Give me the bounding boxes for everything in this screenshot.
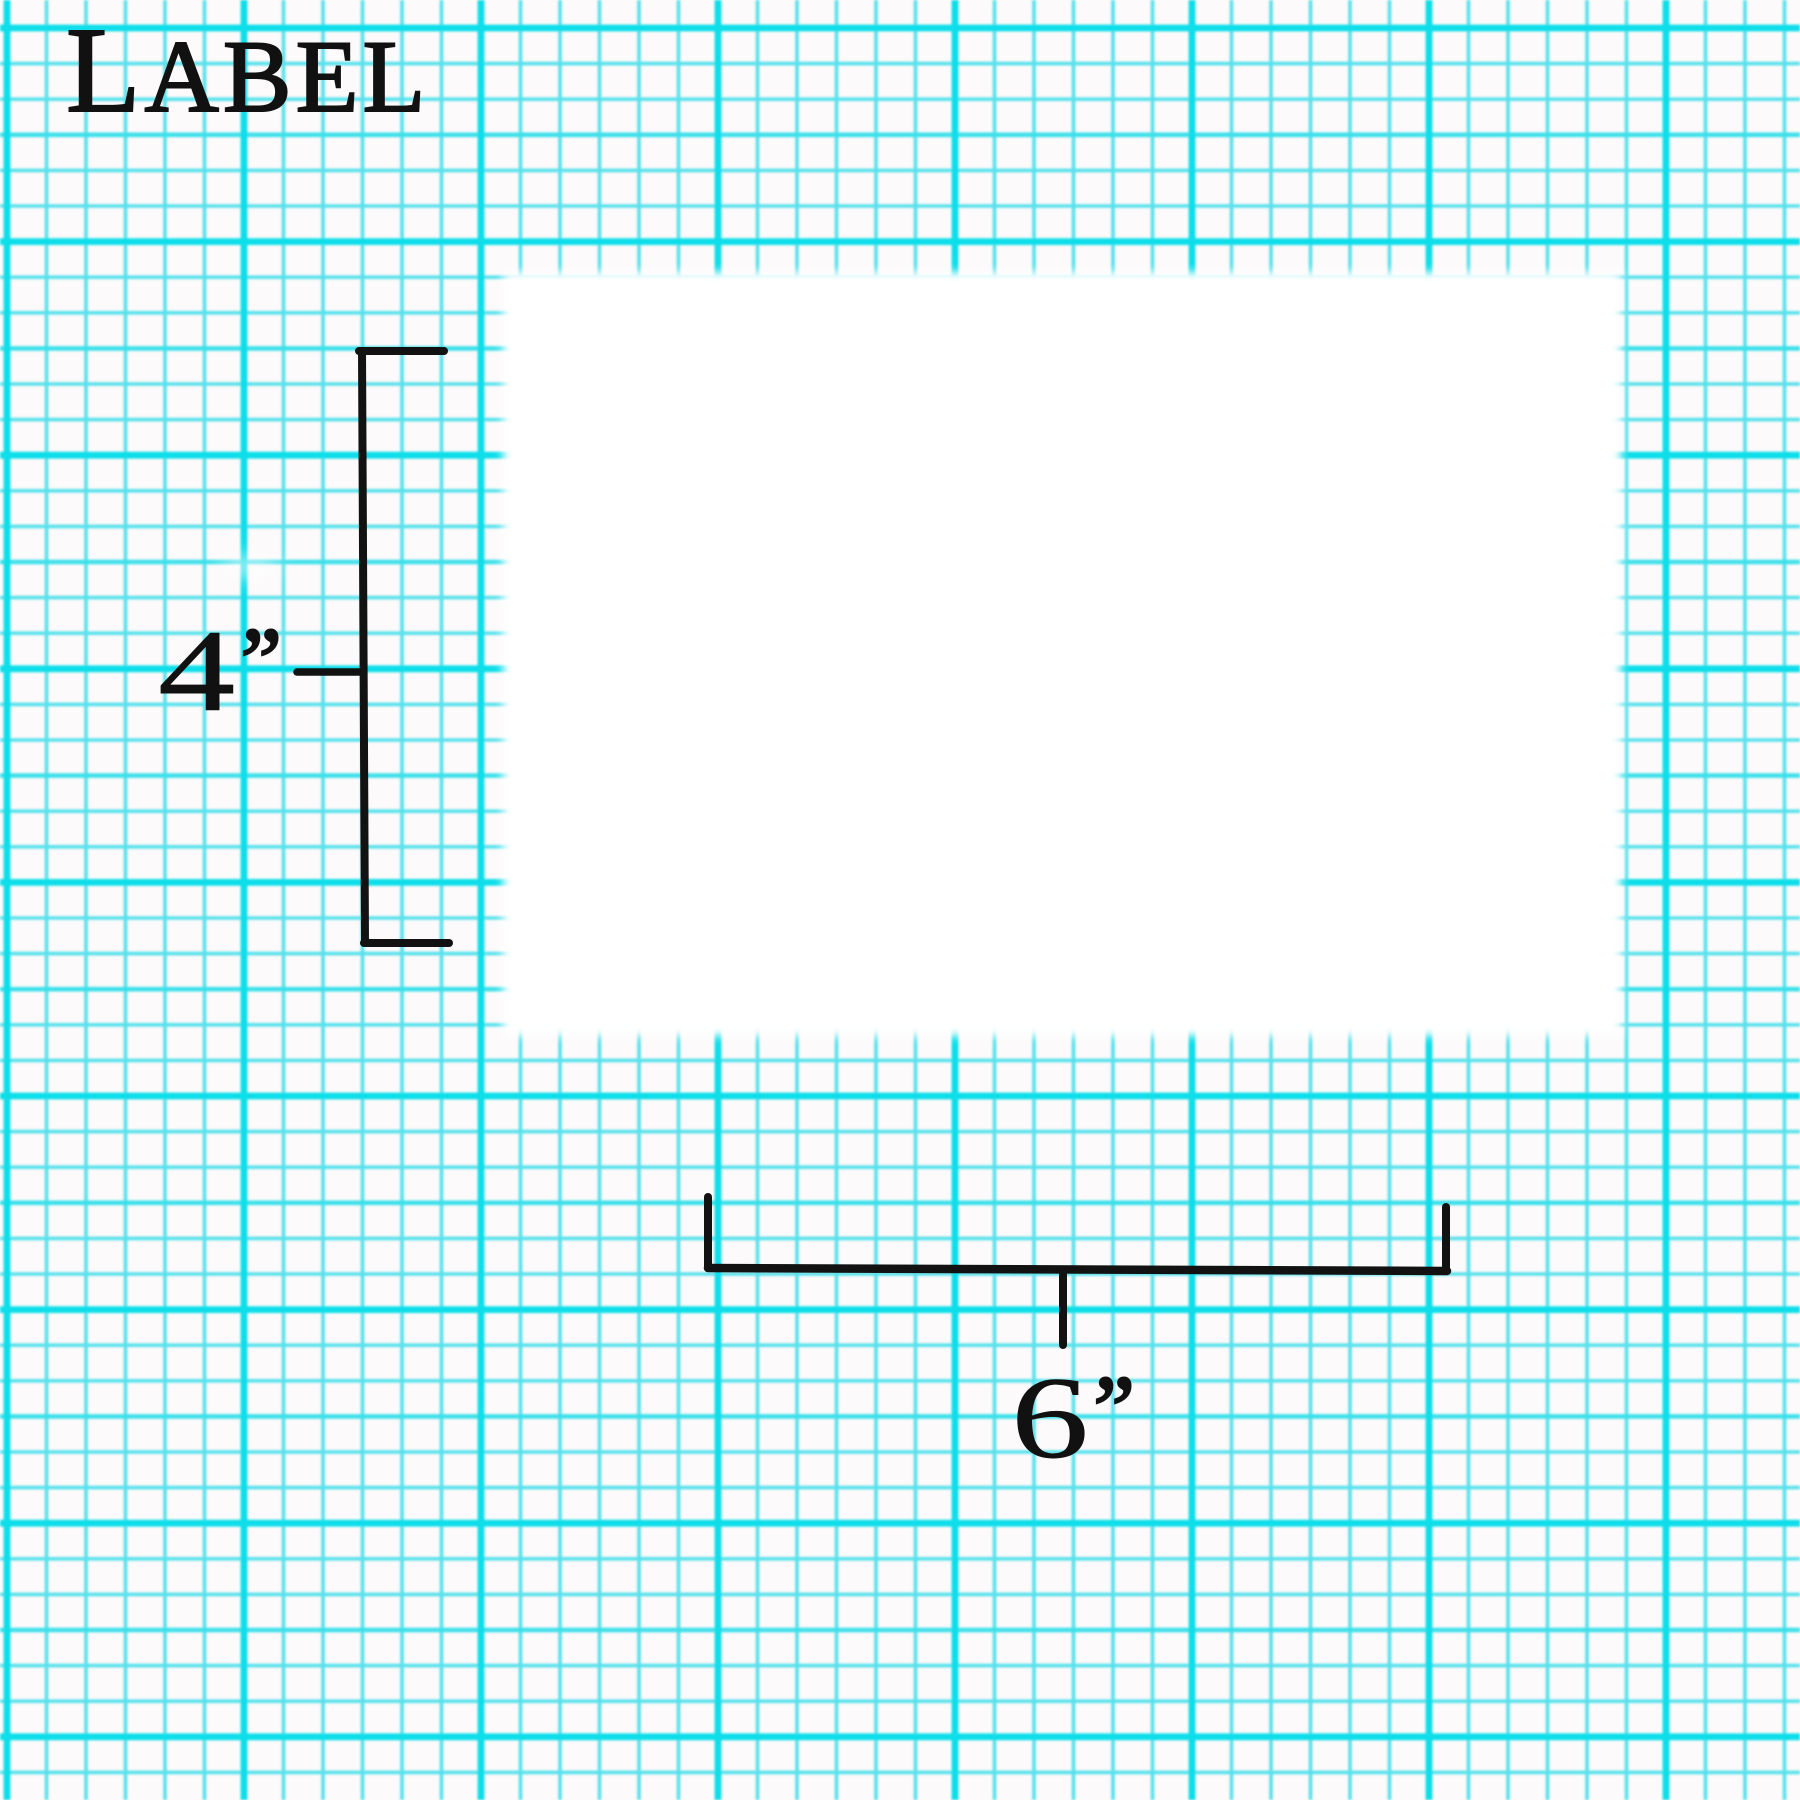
svg-text:’’: ’’ xyxy=(229,607,278,718)
svg-text:LABEL: LABEL xyxy=(66,3,429,138)
svg-text:4: 4 xyxy=(158,606,235,736)
svg-text:’’: ’’ xyxy=(1082,1355,1131,1466)
svg-text:6: 6 xyxy=(1011,1352,1089,1482)
